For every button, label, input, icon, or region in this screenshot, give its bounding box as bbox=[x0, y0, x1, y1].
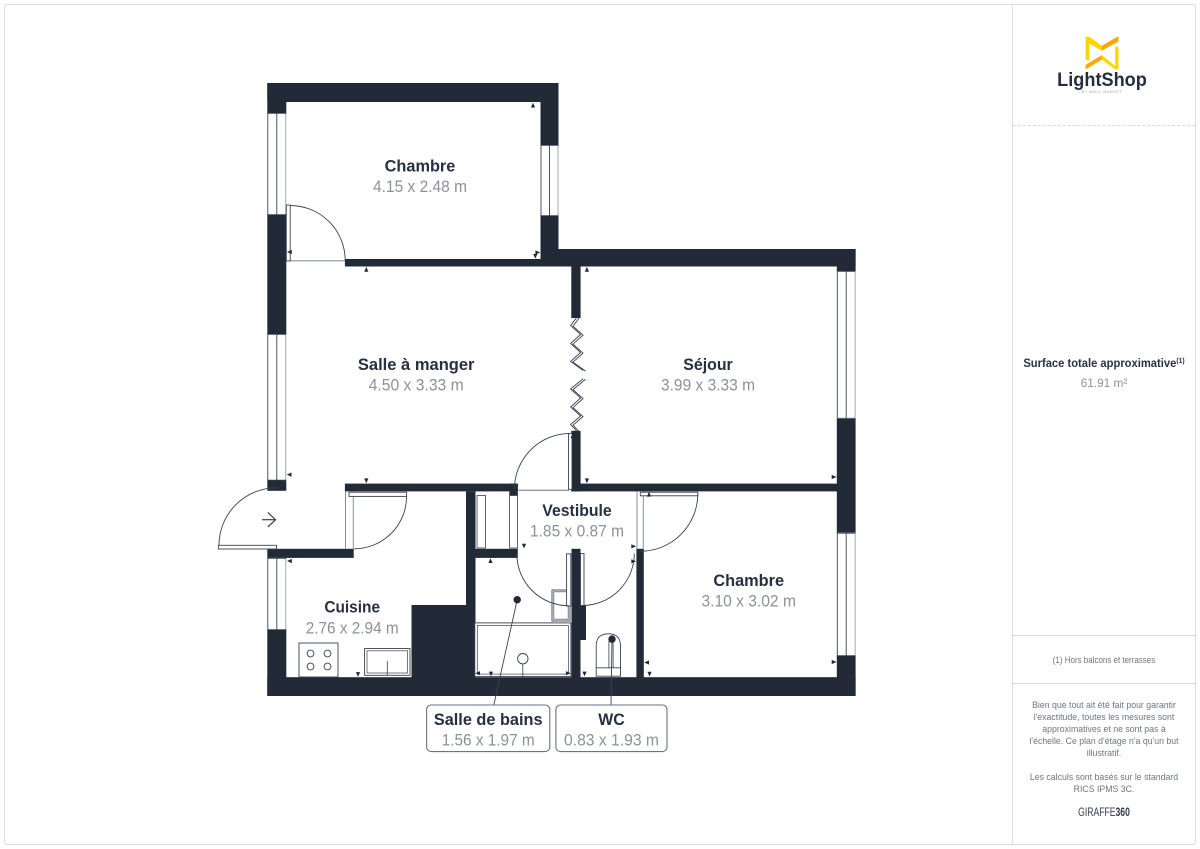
svg-text:Vestibule: Vestibule bbox=[542, 501, 611, 520]
svg-text:1.56 x 1.97 m: 1.56 x 1.97 m bbox=[442, 730, 535, 749]
svg-text:3.99 x 3.33 m: 3.99 x 3.33 m bbox=[661, 376, 755, 395]
svg-text:3.10 x 3.02 m: 3.10 x 3.02 m bbox=[701, 592, 796, 611]
svg-text:4.50 x 3.33 m: 4.50 x 3.33 m bbox=[369, 376, 464, 395]
svg-text:Salle à manger: Salle à manger bbox=[358, 355, 475, 374]
svg-text:4.15 x 2.48 m: 4.15 x 2.48 m bbox=[373, 177, 467, 196]
svg-text:Chambre: Chambre bbox=[713, 571, 784, 590]
svg-text:Séjour: Séjour bbox=[683, 355, 733, 374]
svg-text:WC: WC bbox=[598, 710, 625, 729]
svg-text:Chambre: Chambre bbox=[385, 157, 456, 176]
svg-text:Salle de bains: Salle de bains bbox=[434, 710, 543, 729]
svg-text:2.76 x 2.94 m: 2.76 x 2.94 m bbox=[306, 618, 399, 637]
svg-text:1.85 x 0.87 m: 1.85 x 0.87 m bbox=[530, 521, 624, 540]
svg-text:Cuisine: Cuisine bbox=[324, 598, 380, 617]
svg-text:0.83 x 1.93 m: 0.83 x 1.93 m bbox=[564, 730, 659, 749]
